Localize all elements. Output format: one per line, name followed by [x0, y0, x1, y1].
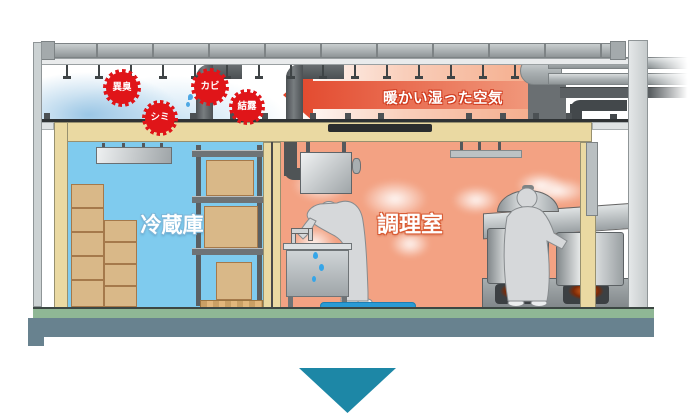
- cold-room-label: 冷蔵庫: [132, 209, 212, 239]
- ceiling-strip: [41, 122, 54, 130]
- warm-air-label: 暖かい湿った空気: [368, 87, 518, 108]
- top-duct-cap: [41, 41, 55, 60]
- exterior-column: [628, 40, 648, 308]
- interior-wall-left: [54, 122, 68, 308]
- badge-mold: カビ: [191, 68, 229, 106]
- worker-cooking-body: [504, 207, 567, 301]
- pipe-fade: [650, 50, 700, 105]
- roof-slab: [41, 58, 645, 65]
- ceiling-strip: [592, 122, 630, 130]
- kitchen-cross-section-diagram: 暖かい湿った空気: [0, 0, 700, 420]
- badge-odor: 異臭: [103, 69, 141, 107]
- wall-pipe: [586, 142, 598, 216]
- kitchen-label: 調理室: [375, 207, 445, 239]
- water-drop-icon: [313, 252, 318, 259]
- water-drop-icon: [319, 264, 324, 271]
- foundation: [28, 318, 654, 337]
- worker-cooking-head: [517, 188, 537, 208]
- sink-leg: [288, 297, 293, 307]
- top-duct-cap: [610, 41, 626, 60]
- recessed-fixture: [328, 124, 432, 132]
- cooler-unit: [96, 147, 172, 164]
- condensation-drip-icon: [186, 102, 190, 107]
- exterior-wall-left: [33, 42, 42, 307]
- ceiling-beam: [54, 122, 592, 142]
- water-drop-icon: [312, 276, 316, 282]
- top-duct: [41, 43, 626, 58]
- plenum-duct-pipe: [286, 64, 303, 122]
- down-triangle-icon: [299, 368, 396, 413]
- badge-stain: シミ: [142, 100, 178, 136]
- foundation-footing: [28, 337, 44, 346]
- faucet-spout: [308, 228, 313, 241]
- badge-condensation: 結露: [229, 89, 265, 125]
- divider-wall-core: [271, 142, 273, 308]
- floor: [33, 307, 654, 318]
- sink-counter: [283, 243, 352, 250]
